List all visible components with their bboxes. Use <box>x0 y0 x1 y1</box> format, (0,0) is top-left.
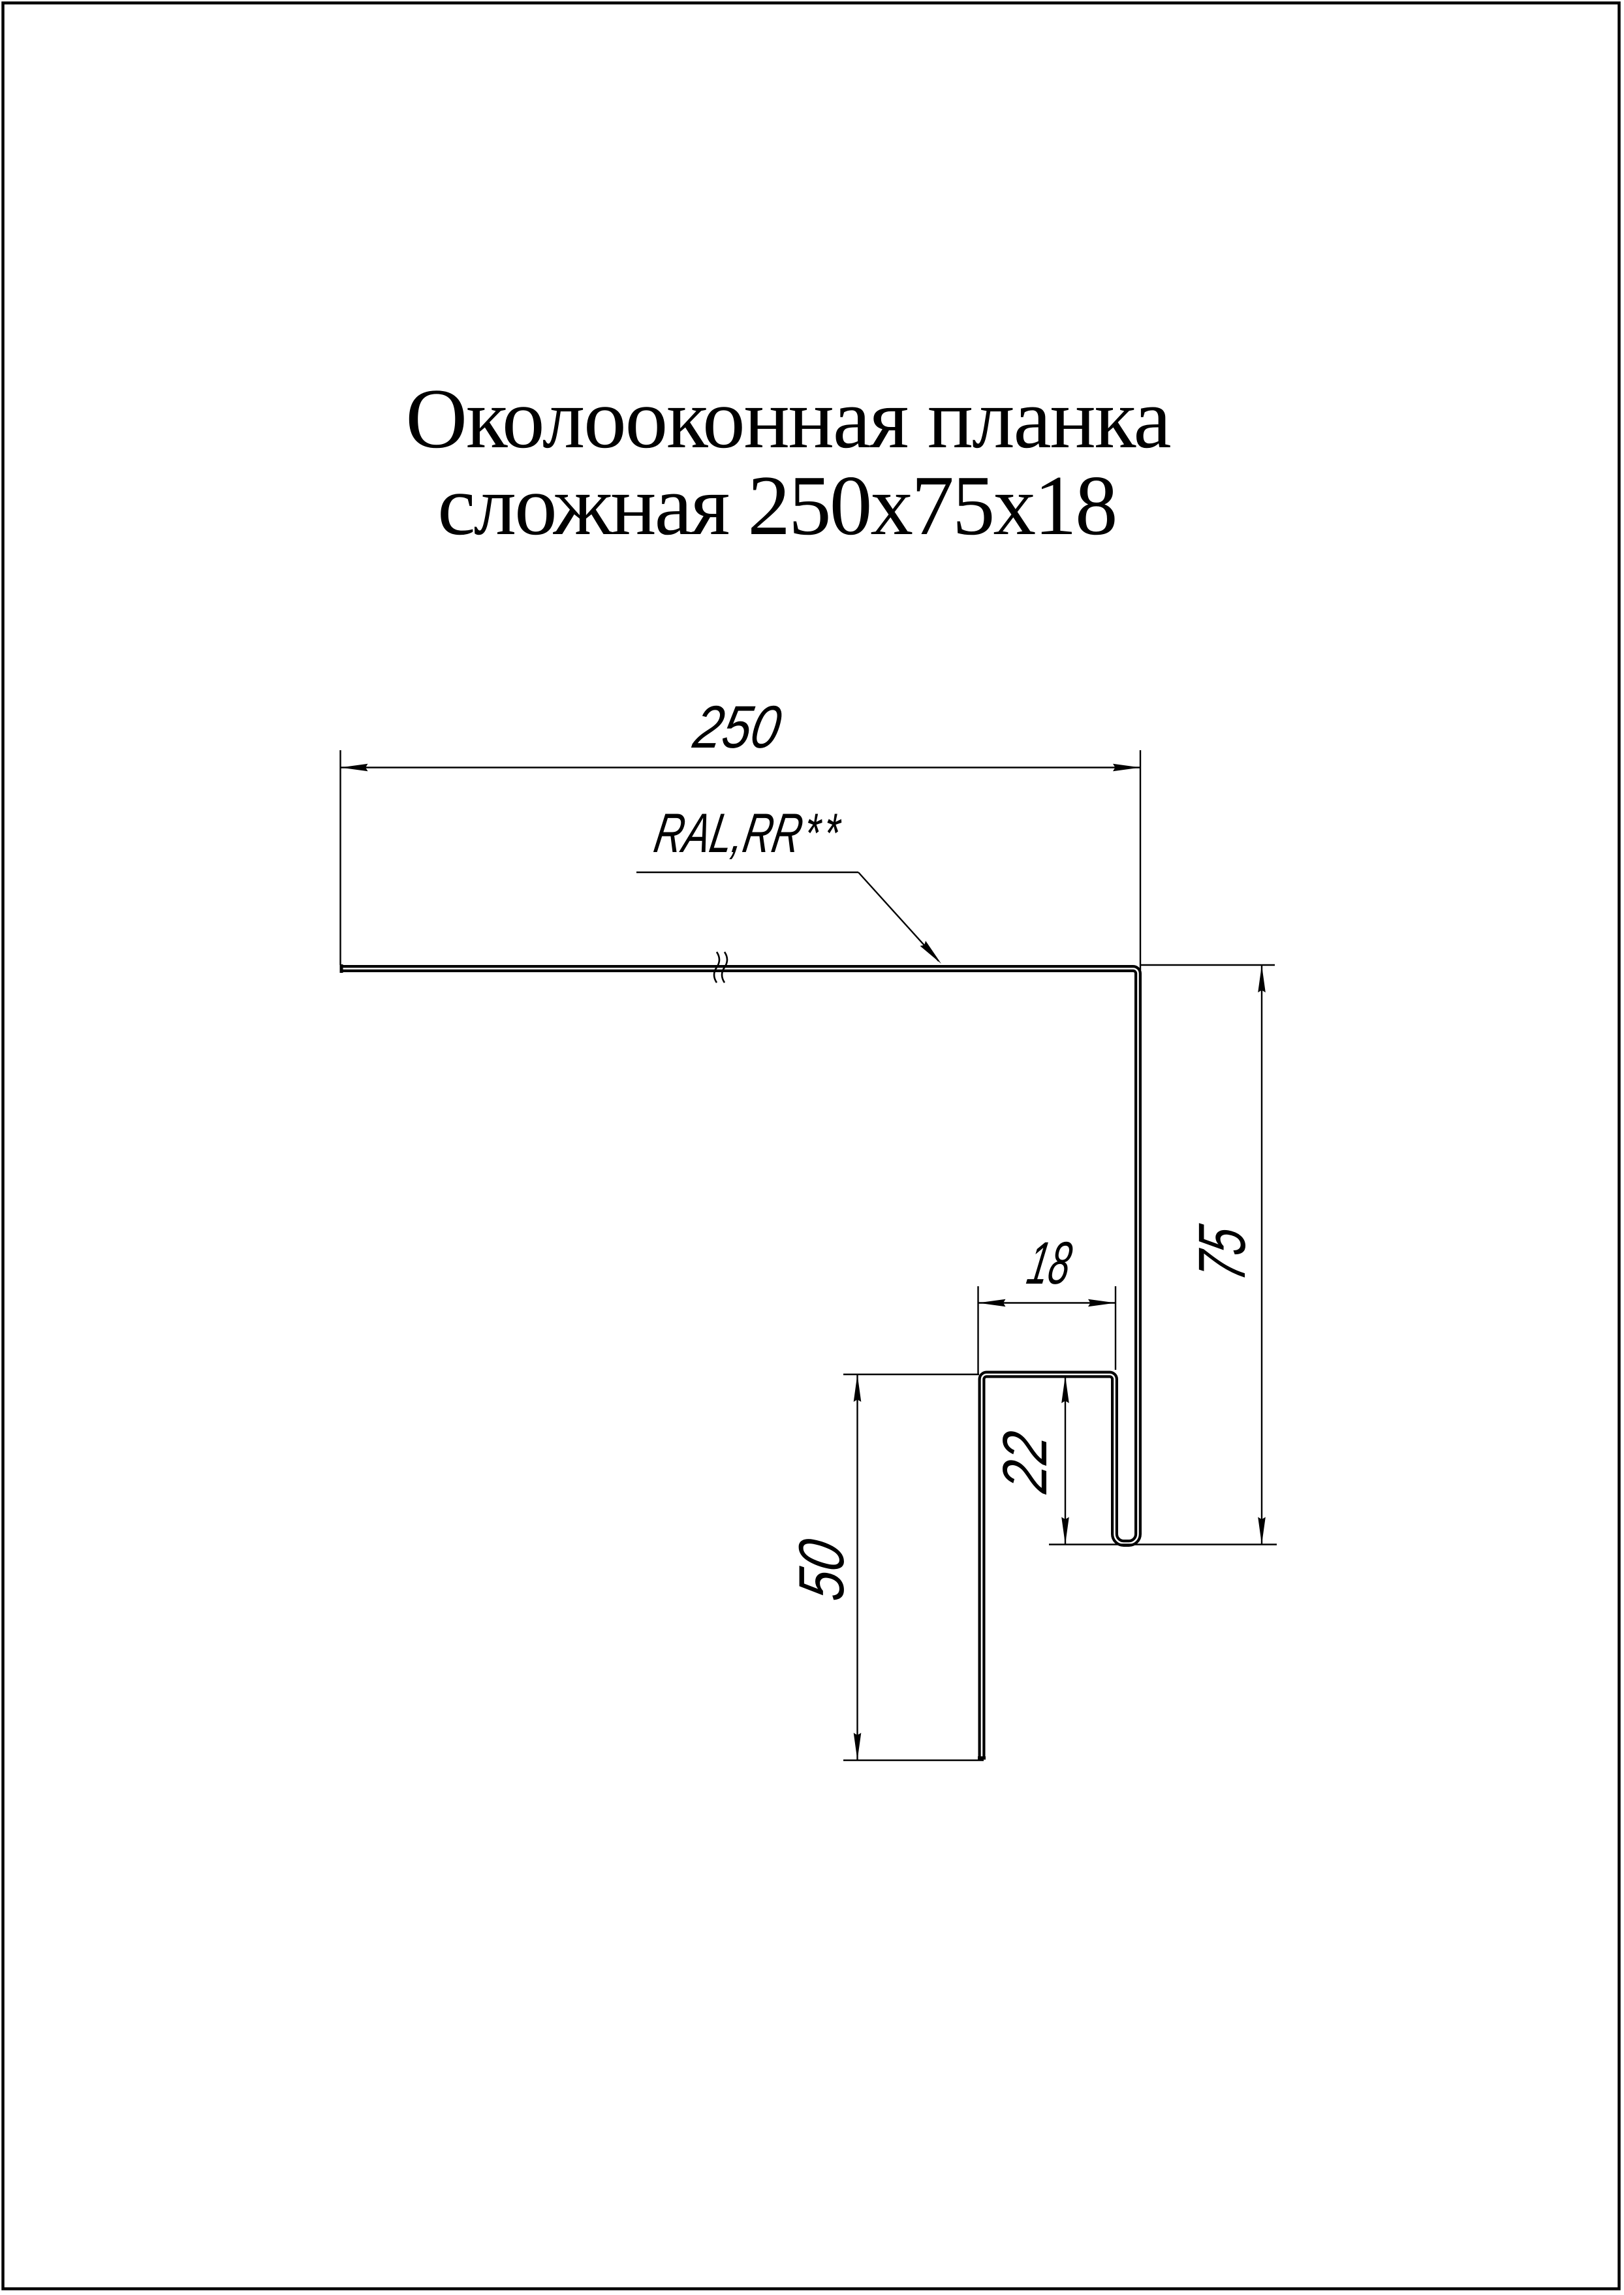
svg-text:250: 250 <box>689 694 787 761</box>
svg-text:Околооконная планка: Околооконная планка <box>405 372 1170 466</box>
svg-text:сложная 250х75х18: сложная 250х75х18 <box>437 458 1116 553</box>
svg-text:22: 22 <box>990 1427 1060 1498</box>
